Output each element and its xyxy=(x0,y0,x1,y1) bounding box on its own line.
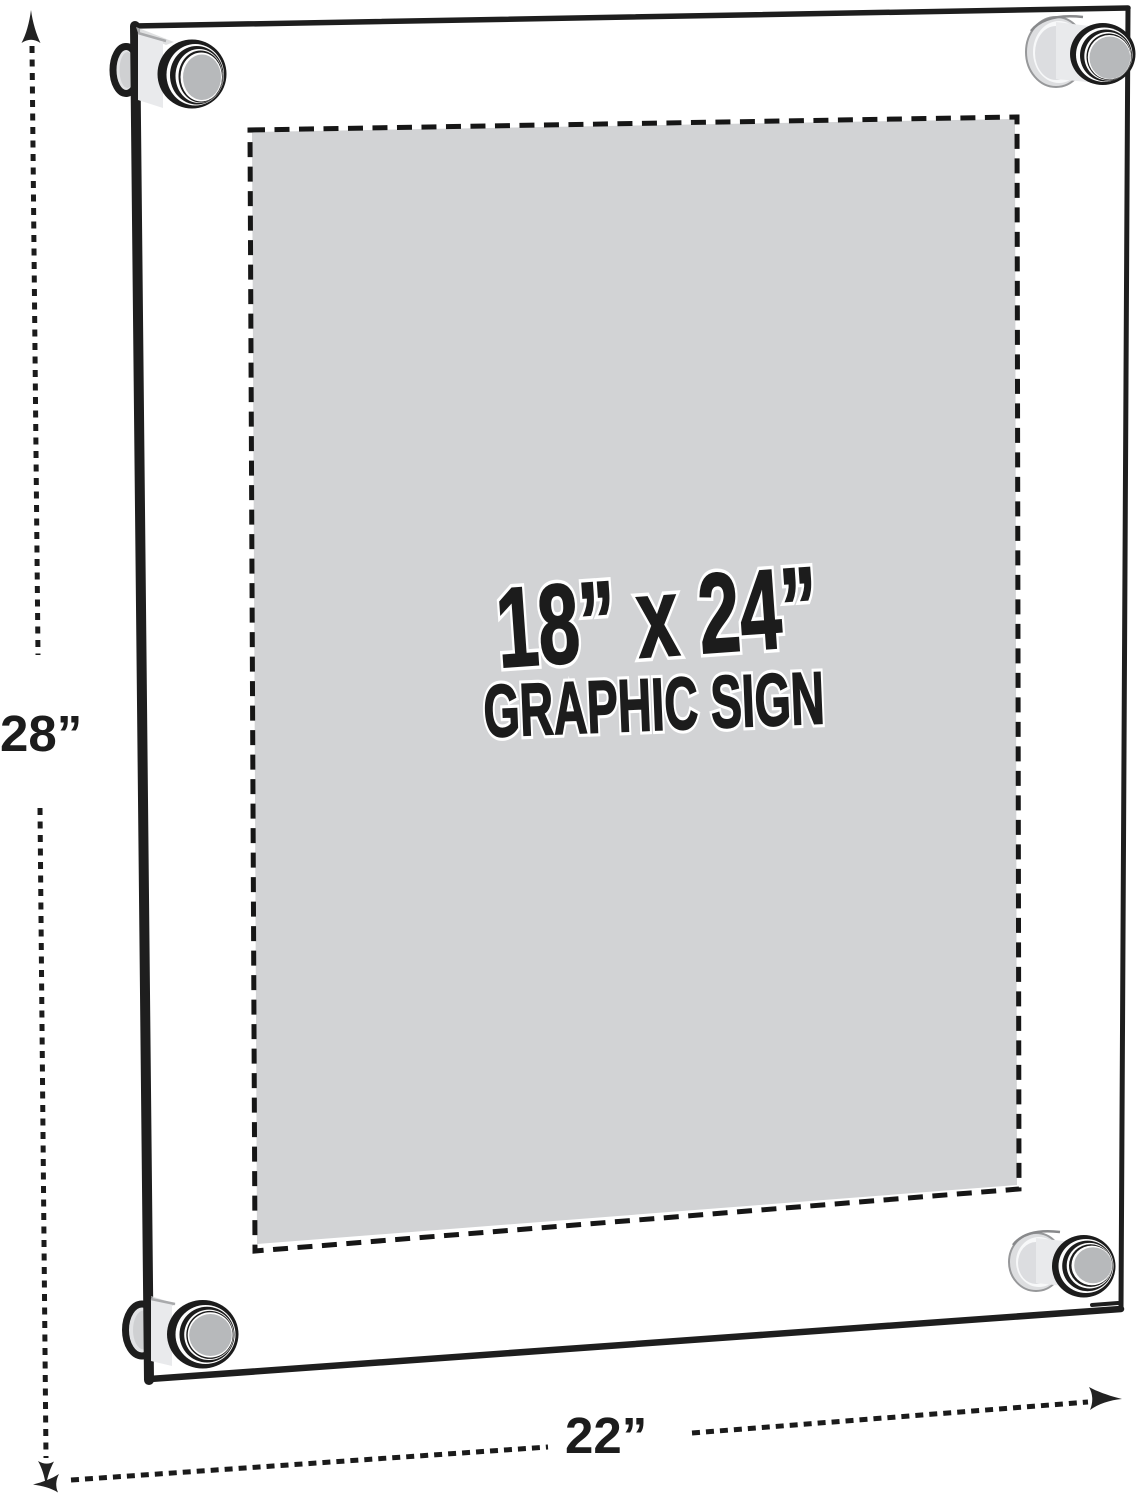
svg-text:28”: 28” xyxy=(0,705,82,762)
svg-text:22”: 22” xyxy=(565,1407,647,1464)
svg-text:GRAPHIC SIGN: GRAPHIC SIGN xyxy=(482,656,826,753)
